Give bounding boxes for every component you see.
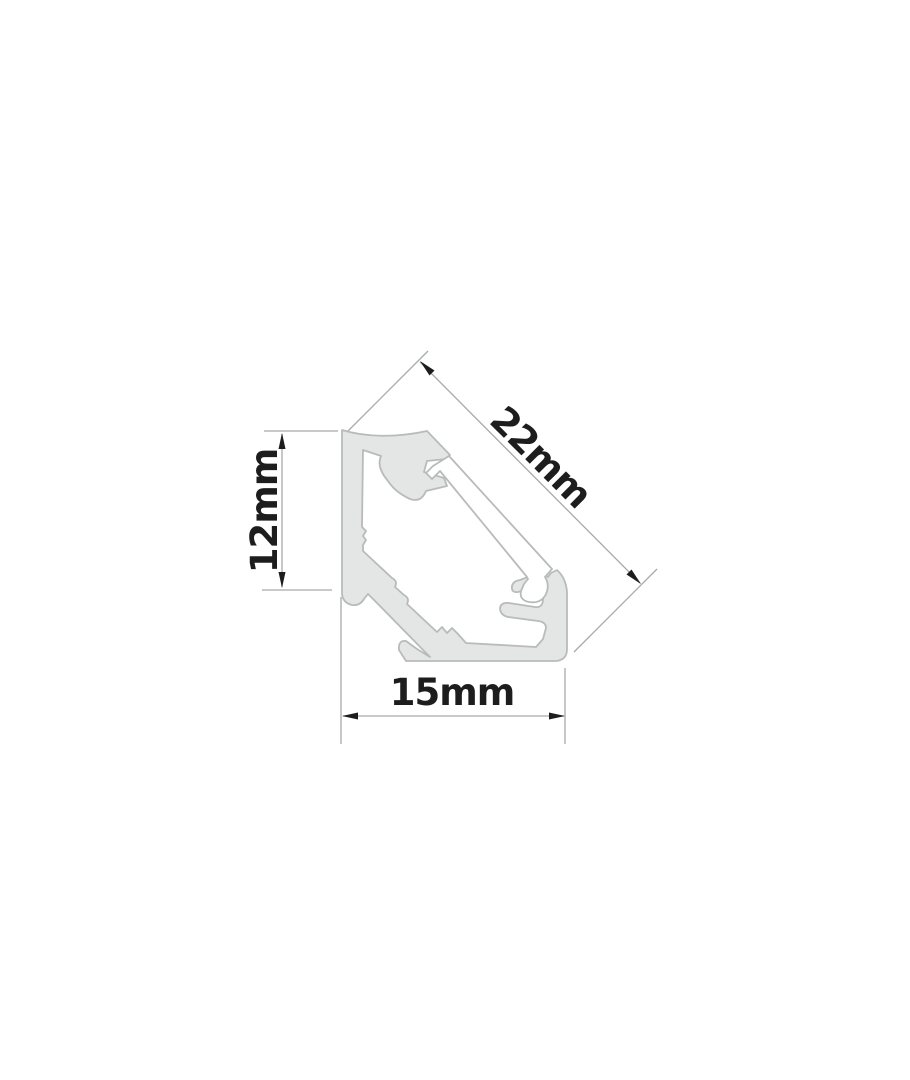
extension-line-diagonal-bottom [574, 569, 657, 652]
drawing-canvas: 12mm 22mm 15mm [0, 0, 910, 1080]
arrow-width-right-icon [549, 713, 565, 720]
led-profile-cross-section-diagram: 12mm 22mm 15mm [0, 0, 910, 1080]
arrow-height-up-icon [279, 433, 286, 449]
dimension-label-width: 15mm [390, 671, 515, 714]
arrow-height-down-icon [279, 572, 286, 588]
arrow-diagonal-up-icon [420, 361, 435, 376]
dimension-label-height: 12mm [243, 449, 286, 574]
arrow-width-left-icon [342, 713, 358, 720]
extension-line-diagonal-top [344, 351, 428, 435]
dimension-arrows [279, 361, 642, 720]
dimension-label-diagonal: 22mm [482, 398, 601, 517]
